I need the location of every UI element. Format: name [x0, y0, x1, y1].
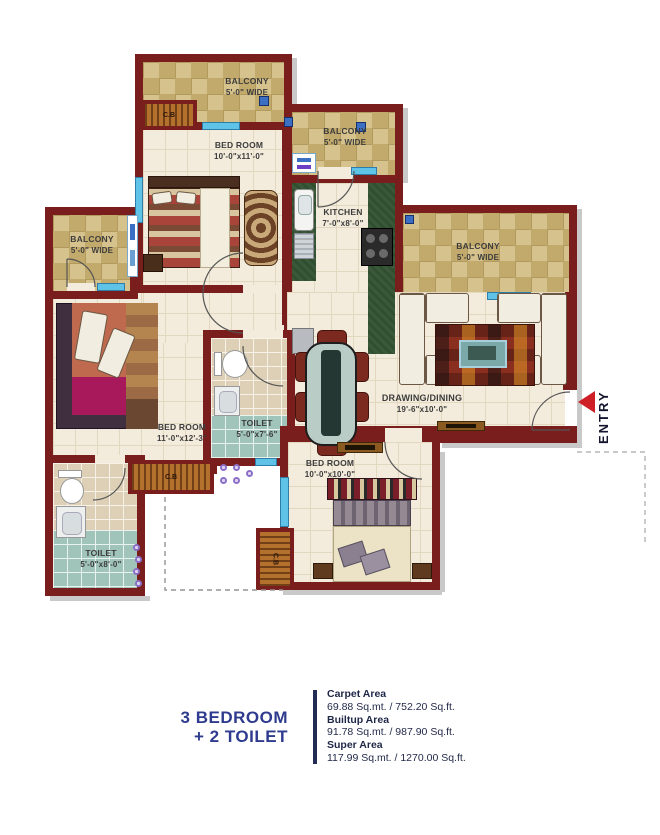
bed-top-pillow-2 — [175, 191, 196, 205]
room-dims: 5'-0"x7'-6" — [202, 429, 312, 440]
bed-bottom-blanket — [333, 500, 411, 526]
flower-icon — [220, 477, 227, 484]
shadow-balcony-right — [577, 209, 582, 304]
flower-icon — [246, 470, 253, 477]
room-name: DRAWING/DINING — [352, 393, 492, 404]
room-dims: 5'-0" WIDE — [290, 137, 400, 148]
window-bedroom-bottom-west — [280, 477, 289, 527]
room-dims: 10'-0"x11'-0" — [184, 151, 294, 162]
shadow-toilet-left — [50, 596, 150, 601]
cupboard-bottom-label: C.B — [260, 532, 290, 586]
ac-marker-balcony-right — [405, 215, 414, 224]
area-summary: Carpet Area 69.88 Sq.mt. / 752.20 Sq.ft.… — [327, 688, 527, 765]
room-dims: 5'-0" WIDE — [423, 252, 533, 263]
room-name: BALCONY — [423, 241, 533, 252]
bedroom-bottom-label: BED ROOM 10'-0"x10'-0" — [275, 458, 385, 480]
bed-left-quilt-magenta — [72, 377, 126, 415]
super-area-value: 117.99 Sq.mt. / 1270.00 Sq.ft. — [327, 752, 527, 765]
room-dims: 5'-0"x8'-0" — [46, 559, 156, 570]
shadow-bedroom-bottom-south — [283, 590, 442, 595]
bed-top-sheet — [200, 188, 230, 268]
flower-icon — [220, 464, 227, 471]
shadow-east-wall — [577, 304, 582, 443]
summary-divider — [313, 690, 317, 764]
window-kitchen-north — [351, 167, 377, 175]
room-name: BALCONY — [192, 76, 302, 87]
tv-cabinet-dining — [437, 421, 485, 431]
kitchen-stove — [361, 228, 393, 266]
room-dims: 7'-0"x8'-0" — [288, 218, 398, 229]
balcony-kitchen-label: BALCONY 5'-0" WIDE — [290, 126, 400, 148]
bedroom-top-label: BED ROOM 10'-0"x11'-0" — [184, 140, 294, 162]
room-name: BALCONY — [37, 234, 147, 245]
flower-icon — [233, 477, 240, 484]
shower-toilet-left — [56, 506, 86, 538]
window-bedroom-left-north — [97, 283, 125, 291]
burner — [366, 234, 375, 243]
room-name: BALCONY — [290, 126, 400, 137]
bed-top-headboard — [148, 176, 240, 188]
window-sill-mark2 — [297, 165, 311, 169]
door-gap-toilet-left — [95, 455, 125, 463]
flower-icon — [135, 580, 142, 587]
door-gap-bedroom-bottom — [385, 428, 422, 442]
builtup-area-value: 91.78 Sq.mt. / 987.90 Sq.ft. — [327, 726, 527, 739]
carpet-area-value: 69.88 Sq.mt. / 752.20 Sq.ft. — [327, 701, 527, 714]
dresser-top — [345, 445, 375, 450]
door-gap-balcony-left — [67, 283, 95, 291]
shadow-bedroom-bottom-east — [440, 452, 445, 592]
wc-toilet-mid-tank — [214, 352, 222, 376]
coffee-table-top — [468, 346, 496, 360]
dining-table — [305, 342, 357, 446]
sofa-right-column — [541, 293, 567, 385]
dresser-bedroom-bottom — [337, 442, 383, 453]
flower-icon — [233, 464, 240, 471]
balcony-right-label: BALCONY 5'-0" WIDE — [423, 241, 533, 263]
toilet-left-label: TOILET 5'-0"x8'-0" — [46, 548, 156, 570]
tv-cabinet-top — [446, 424, 476, 428]
cupboard-left-label: C.B — [132, 464, 210, 490]
room-dims: 5'-0" WIDE — [192, 87, 302, 98]
kitchen-label: KITCHEN 7'-0"x8'-0" — [288, 207, 398, 229]
cupboard-bottom: C.B — [256, 528, 294, 590]
carpet-area-label: Carpet Area — [327, 688, 527, 701]
cupboard-left: C.B — [128, 460, 214, 494]
room-dims: 10'-0"x10'-0" — [275, 469, 385, 480]
window-sill-mark — [297, 158, 311, 162]
drawing-dining-label: DRAWING/DINING 19'-6"x10'-0" — [352, 393, 492, 415]
room-name: KITCHEN — [288, 207, 398, 218]
door-gap-toilet-mid — [243, 330, 283, 338]
sofa-right-top-arm — [497, 293, 541, 323]
shadow-balcony-kitchen — [403, 108, 408, 183]
sofa-left-top-arm — [425, 293, 469, 323]
dining-table-runner — [321, 350, 341, 436]
room-name: TOILET — [202, 418, 312, 429]
window-toilet-mid-south — [255, 458, 277, 466]
bed-bottom-headboard — [327, 478, 417, 500]
rug-bedroom-top — [244, 190, 278, 266]
wc-toilet-left-bowl — [60, 478, 84, 504]
burner — [379, 234, 388, 243]
burner — [366, 249, 375, 258]
super-area-label: Super Area — [327, 739, 527, 752]
bed-bottom-bench-right — [412, 563, 432, 579]
entry-arrow-icon — [578, 391, 595, 413]
room-name: BED ROOM — [184, 140, 294, 151]
shower-toilet-mid — [214, 386, 240, 416]
door-gap-balcony-kitchen — [318, 167, 354, 179]
floor-plan-canvas: C.B C.B C.B — [0, 0, 660, 835]
cupboard-top: C.B — [141, 100, 197, 130]
burner — [379, 249, 388, 258]
bed-top-side-table — [143, 254, 163, 272]
plan-title: 3 BEDROOM + 2 TOILET — [150, 708, 288, 746]
plan-title-line2: + 2 TOILET — [150, 727, 288, 746]
toilet-mid-label: TOILET 5'-0"x7'-6" — [202, 418, 312, 440]
wc-toilet-left-tank — [58, 470, 82, 478]
builtup-area-label: Builtup Area — [327, 714, 527, 727]
dashed-boundary-right — [577, 452, 645, 545]
kitchen-drainboard — [294, 233, 314, 259]
coffee-table — [459, 340, 507, 368]
shadow-dining-south — [442, 443, 582, 448]
entry-label: ENTRY — [596, 374, 611, 444]
door-gap-bedroom-top — [243, 285, 282, 293]
shower-tray — [219, 391, 237, 413]
room-dims: 19'-6"x10'-0" — [352, 404, 492, 415]
sofa-left-column — [399, 293, 425, 385]
window-sill-kitchen — [292, 153, 316, 173]
wc-toilet-mid-bowl — [222, 350, 248, 378]
room-name: BED ROOM — [275, 458, 385, 469]
room-dims: 5'-0" WIDE — [37, 245, 147, 256]
bed-left-quilt-tan — [126, 303, 158, 399]
plan-title-line1: 3 BEDROOM — [150, 708, 288, 727]
shower-tray — [62, 512, 82, 535]
room-name: TOILET — [46, 548, 156, 559]
cupboard-top-label: C.B — [145, 104, 193, 126]
balcony-top-label: BALCONY 5'-0" WIDE — [192, 76, 302, 98]
bed-bottom-bench-left — [313, 563, 333, 579]
balcony-left-label: BALCONY 5'-0" WIDE — [37, 234, 147, 256]
window-bedroom-top-north — [202, 122, 240, 130]
